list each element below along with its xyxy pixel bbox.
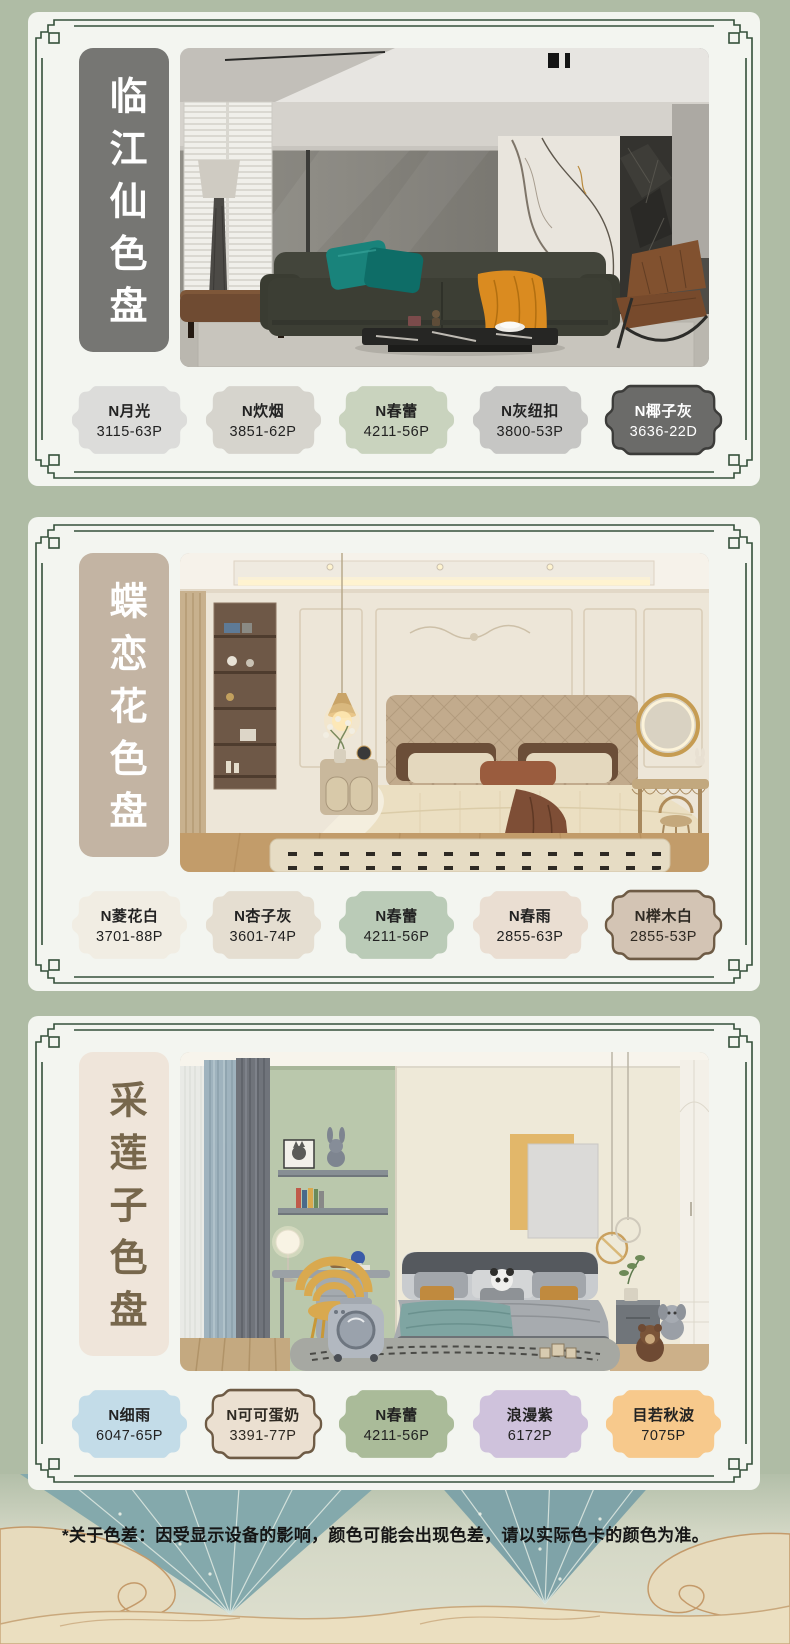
swatch-1-5-highlighted: N椰子灰 3636-22D <box>605 385 722 455</box>
swatch-name: N杏子灰 <box>234 905 292 926</box>
swatch-1-2: N炊烟 3851-62P <box>205 385 322 455</box>
wave-cloud-illustration <box>0 1474 790 1644</box>
swatch-code: 7075P <box>641 1428 685 1444</box>
swatch-code: 3701-88P <box>96 929 163 945</box>
kids-room-photo <box>180 1052 709 1371</box>
swatch-name: N可可蛋奶 <box>226 1404 299 1425</box>
swatch-2-1: N菱花白 3701-88P <box>71 890 188 960</box>
swatch-name: N月光 <box>108 400 150 421</box>
swatch-code: 3391-77P <box>230 1428 297 1444</box>
swatch-2-5-highlighted: N榉木白 2855-53P <box>605 890 722 960</box>
swatch-code: 3636-22D <box>630 424 698 440</box>
swatch-name: N春雨 <box>509 905 551 926</box>
living-room-photo <box>180 48 709 367</box>
swatch-1-4: N灰纽扣 3800-53P <box>472 385 589 455</box>
swatch-name: N细雨 <box>108 1404 150 1425</box>
palette-title-block: 采莲子色盘 <box>79 1052 169 1356</box>
swatch-code: 2855-53P <box>630 929 697 945</box>
palette-card-linjiangxian: 临江仙色盘 <box>28 12 760 486</box>
swatch-name: N炊烟 <box>242 400 284 421</box>
swatch-name: N榉木白 <box>635 905 693 926</box>
swatch-3-5: 目若秋波 7075P <box>605 1389 722 1459</box>
swatch-code: 2855-63P <box>497 929 564 945</box>
swatch-2-3: N春蕾 4211-56P <box>338 890 455 960</box>
swatch-2-2: N杏子灰 3601-74P <box>205 890 322 960</box>
swatch-3-2-highlighted: N可可蛋奶 3391-77P <box>205 1389 322 1459</box>
swatch-name: N菱花白 <box>101 905 159 926</box>
palette-title: 临江仙色盘 <box>105 62 143 339</box>
swatch-1-1: N月光 3115-63P <box>71 385 188 455</box>
swatch-row: N月光 3115-63P N炊烟 3851-62P N春蕾 4211-56P N… <box>71 385 722 455</box>
swatch-2-4: N春雨 2855-63P <box>472 890 589 960</box>
swatch-name: N春蕾 <box>375 1404 417 1425</box>
swatch-3-1: N细雨 6047-65P <box>71 1389 188 1459</box>
swatch-name: N灰纽扣 <box>501 400 559 421</box>
swatch-name: N春蕾 <box>375 400 417 421</box>
palette-card-dielianhua: 蝶恋花色盘 <box>28 517 760 991</box>
swatch-name: 目若秋波 <box>632 1404 694 1425</box>
swatch-code: 4211-56P <box>364 1428 430 1444</box>
swatch-name: 浪漫紫 <box>507 1404 554 1425</box>
swatch-row: N细雨 6047-65P N可可蛋奶 3391-77P N春蕾 4211-56P <box>71 1389 722 1459</box>
color-disclaimer-note: *关于色差：因受显示设备的影响，颜色可能会出现色差，请以实际色卡的颜色为准。 <box>62 1521 762 1546</box>
swatch-row: N菱花白 3701-88P N杏子灰 3601-74P N春蕾 4211-56P… <box>71 890 722 960</box>
bedroom-photo <box>180 553 709 872</box>
swatch-code: 4211-56P <box>364 424 430 440</box>
palette-card-cailianzi: 采莲子色盘 <box>28 1016 760 1490</box>
swatch-3-3: N春蕾 4211-56P <box>338 1389 455 1459</box>
swatch-code: 6172P <box>508 1428 552 1444</box>
palette-title: 采莲子色盘 <box>105 1066 143 1343</box>
swatch-code: 3851-62P <box>230 424 297 440</box>
swatch-name: N春蕾 <box>375 905 417 926</box>
palette-title-block: 临江仙色盘 <box>79 48 169 352</box>
swatch-code: 4211-56P <box>364 929 430 945</box>
palette-title-block: 蝶恋花色盘 <box>79 553 169 857</box>
swatch-3-4: 浪漫紫 6172P <box>472 1389 589 1459</box>
swatch-code: 6047-65P <box>96 1428 163 1444</box>
swatch-code: 3115-63P <box>97 424 163 440</box>
swatch-code: 3800-53P <box>497 424 564 440</box>
swatch-name: N椰子灰 <box>635 400 693 421</box>
swatch-code: 3601-74P <box>230 929 297 945</box>
palette-title: 蝶恋花色盘 <box>105 567 143 844</box>
swatch-1-3: N春蕾 4211-56P <box>338 385 455 455</box>
